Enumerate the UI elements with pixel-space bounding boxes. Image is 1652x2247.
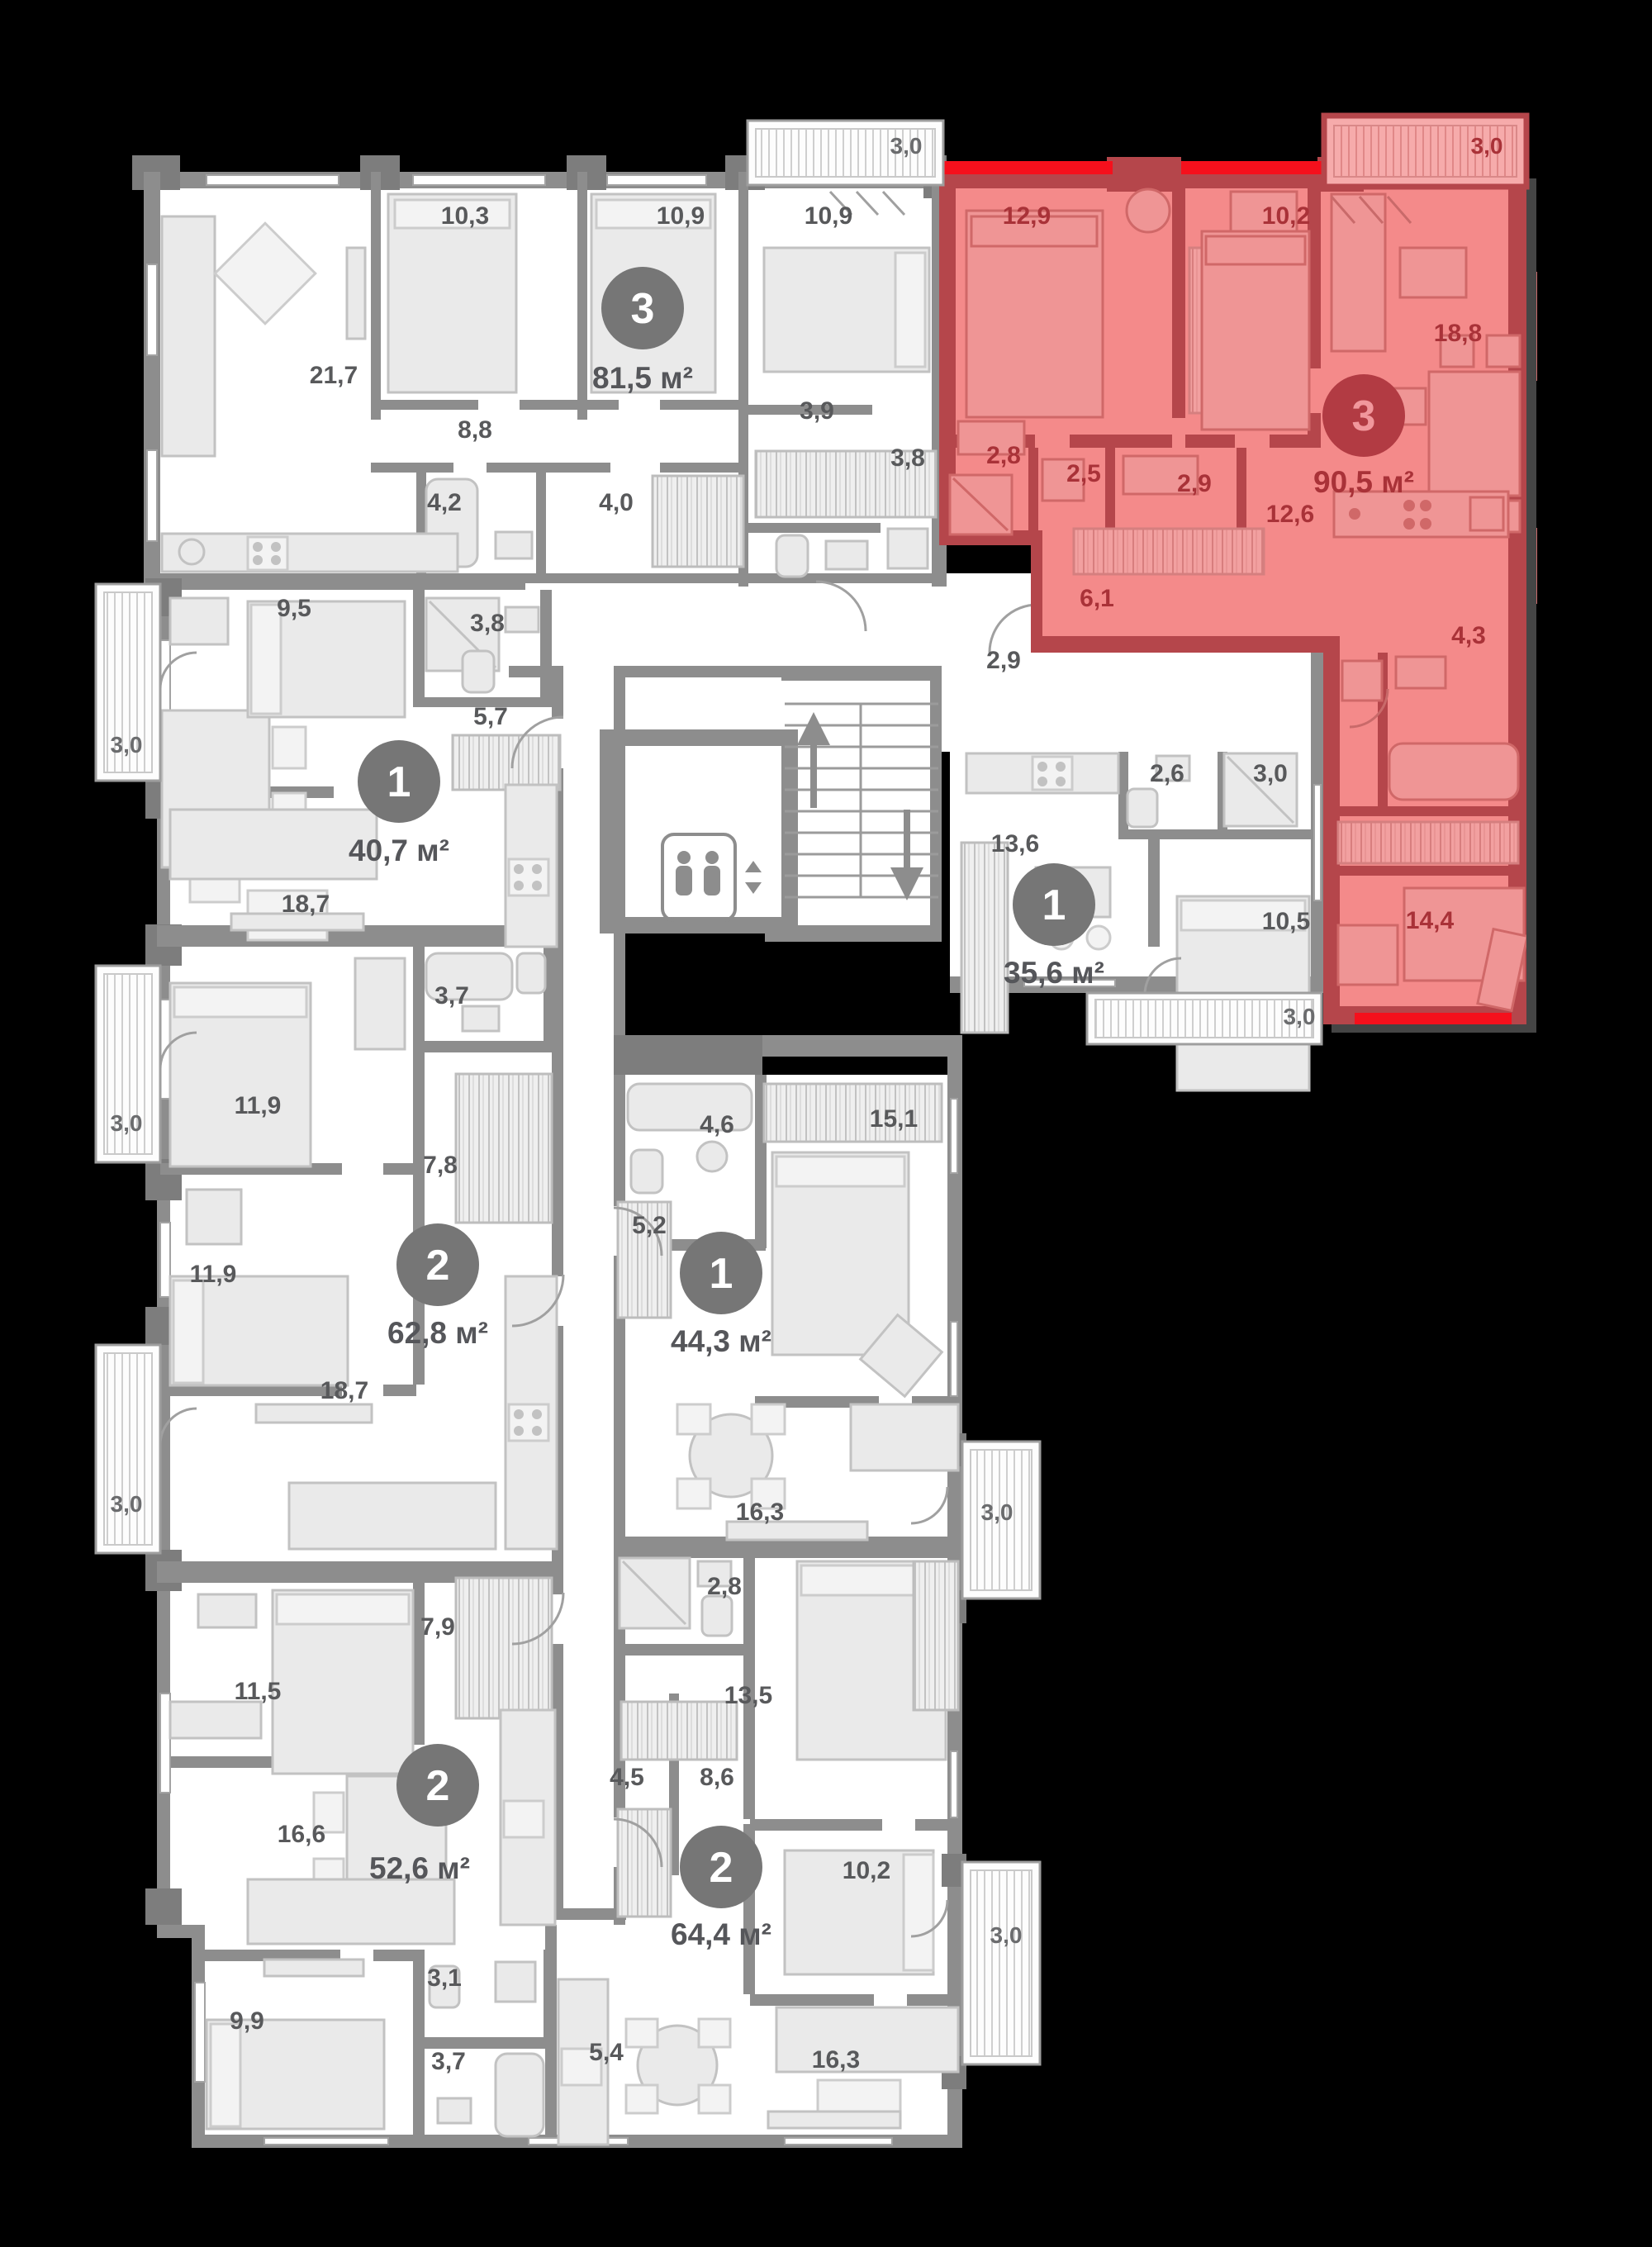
apartment-rooms-count: 1 xyxy=(1042,881,1066,929)
room-area-label: 4,6 xyxy=(700,1111,734,1138)
apartment-total-area: 81,5 м² xyxy=(592,361,693,395)
room-area-label: 11,5 xyxy=(235,1678,282,1705)
room-area-label: 11,9 xyxy=(235,1092,282,1119)
apartment-rooms-count: 2 xyxy=(426,1762,450,1810)
room-area-label: 16,6 xyxy=(278,1821,325,1848)
apartment-total-area: 52,6 м² xyxy=(369,1851,470,1885)
room-area-label: 6,1 xyxy=(1080,585,1114,612)
apartment-total-area: 35,6 м² xyxy=(1004,956,1104,990)
room-area-label: 3,0 xyxy=(990,1922,1023,1948)
room-area-label: 16,3 xyxy=(812,2046,860,2074)
room-area-label: 3,8 xyxy=(470,610,505,637)
room-area-label: 9,9 xyxy=(230,2007,264,2035)
room-area-label: 8,6 xyxy=(700,1764,734,1791)
room-area-label: 3,7 xyxy=(434,982,469,1009)
room-area-label: 3,0 xyxy=(111,1491,143,1517)
room-area-label: 12,9 xyxy=(1003,202,1051,230)
floor-plan-svg: 10,310,910,93,021,78,83,93,84,24,012,910… xyxy=(0,0,1652,2247)
room-area-label: 3,8 xyxy=(890,444,925,472)
apartment-rooms-count: 3 xyxy=(631,285,655,333)
room-area-label: 5,2 xyxy=(632,1212,667,1239)
apartment-total-area: 90,5 м² xyxy=(1313,465,1414,499)
room-area-label: 3,0 xyxy=(111,1110,143,1136)
room-area-label: 7,9 xyxy=(420,1613,455,1641)
apartment-total-area: 62,8 м² xyxy=(387,1316,488,1350)
room-area-label: 2,6 xyxy=(1150,760,1184,787)
apartment-rooms-count: 1 xyxy=(710,1250,733,1298)
room-area-label: 2,9 xyxy=(986,647,1021,674)
room-area-label: 18,8 xyxy=(1434,320,1482,347)
room-area-label: 18,7 xyxy=(282,891,330,918)
room-area-label: 10,2 xyxy=(1262,202,1310,230)
balcony-64-4 xyxy=(962,1862,1040,2064)
room-area-label: 10,2 xyxy=(843,1857,890,1884)
room-area-label: 4,3 xyxy=(1451,622,1486,649)
room-area-label: 2,5 xyxy=(1066,460,1101,487)
room-area-label: 2,8 xyxy=(707,1573,742,1600)
apartment-rooms-count: 3 xyxy=(1352,392,1376,440)
room-area-label: 3,0 xyxy=(981,1499,1014,1525)
room-area-label: 3,0 xyxy=(890,133,923,159)
room-area-label: 10,9 xyxy=(805,202,852,230)
room-area-label: 21,7 xyxy=(310,362,358,389)
room-area-label: 2,9 xyxy=(1177,470,1212,497)
room-area-label: 5,7 xyxy=(473,703,508,730)
room-area-label: 15,1 xyxy=(870,1105,918,1133)
room-area-label: 18,7 xyxy=(320,1377,368,1404)
room-area-label: 4,2 xyxy=(427,489,462,516)
room-area-label: 13,5 xyxy=(724,1682,772,1709)
room-area-label: 12,6 xyxy=(1266,501,1314,528)
room-area-label: 4,5 xyxy=(610,1764,644,1791)
apartment-rooms-count: 2 xyxy=(710,1844,733,1892)
apartment-total-area: 64,4 м² xyxy=(671,1917,771,1951)
room-area-label: 10,5 xyxy=(1262,908,1310,935)
room-area-label: 4,0 xyxy=(599,489,634,516)
room-area-label: 3,0 xyxy=(111,732,143,758)
room-area-label: 14,4 xyxy=(1406,907,1455,934)
room-area-label: 3,0 xyxy=(1284,1004,1316,1029)
room-area-label: 11,9 xyxy=(190,1261,237,1288)
room-area-label: 7,8 xyxy=(423,1152,458,1179)
apartment-rooms-count: 1 xyxy=(387,758,411,806)
room-area-label: 8,8 xyxy=(458,416,492,444)
room-area-label: 3,1 xyxy=(427,1964,462,1992)
room-area-label: 3,9 xyxy=(800,397,834,425)
room-area-label: 2,8 xyxy=(986,442,1021,469)
room-area-label: 3,0 xyxy=(1253,760,1288,787)
balcony-62-8-living xyxy=(96,1345,160,1553)
apartment-rooms-count: 2 xyxy=(426,1242,450,1290)
room-area-label: 3,7 xyxy=(431,2048,466,2075)
room-area-label: 9,5 xyxy=(277,595,311,622)
room-area-label: 5,4 xyxy=(589,2039,624,2066)
room-area-label: 16,3 xyxy=(736,1499,784,1526)
room-area-label: 13,6 xyxy=(991,830,1039,857)
room-area-label: 10,9 xyxy=(657,202,705,230)
room-area-label: 10,3 xyxy=(441,202,489,230)
room-area-label: 3,0 xyxy=(1471,133,1503,159)
apartment-total-area: 40,7 м² xyxy=(349,834,449,867)
apartment-total-area: 44,3 м² xyxy=(671,1324,771,1358)
